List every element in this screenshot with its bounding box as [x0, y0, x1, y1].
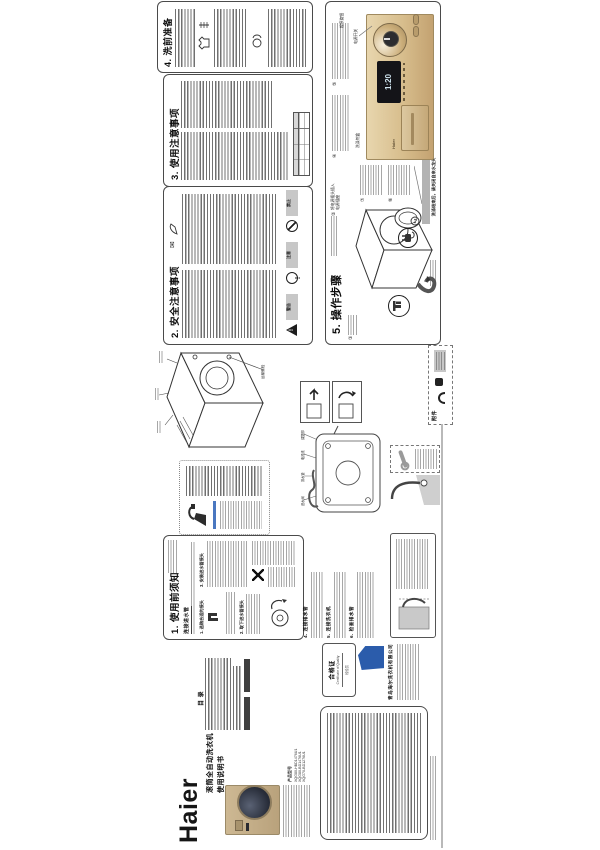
- step7-text: [360, 165, 382, 195]
- warning-triangle-mark: !: [289, 329, 295, 331]
- note-circle-icon: !: [286, 272, 298, 284]
- cover-fine-print: [283, 785, 311, 837]
- step-figure-box-2: [332, 381, 362, 423]
- mail-icon: ✉: [168, 241, 177, 248]
- panel-brand: Haier: [391, 139, 396, 149]
- detergent-drawer: [401, 105, 429, 151]
- tap-spout: [211, 614, 217, 617]
- step4-num: ④: [332, 154, 338, 158]
- section-4-text-1: [175, 9, 195, 67]
- warranty-text: [327, 713, 421, 833]
- faucet-sketch-icon: [186, 501, 210, 529]
- step7-num: ⑦: [360, 198, 366, 202]
- pocket-check-icon: [250, 32, 264, 48]
- adjust-foot-box: [390, 445, 440, 473]
- badge-leader-line: [414, 164, 422, 204]
- section-2-box: 2. 安全注意事项 ✉ ! 警告 ! 注意 禁止: [163, 186, 313, 345]
- rotated-manual-sheet: Haier 滚筒全自动洗衣机 使用说明书 产品型号 XQG80-HBD1476U…: [0, 0, 600, 850]
- install-steps-list: 4. 连接排水管 5. 连接洗衣机 6. 检查排水管: [303, 566, 387, 638]
- tap-figure: [208, 611, 224, 627]
- cover-title-line1: 滚筒全自动洗衣机: [205, 733, 215, 793]
- panel-display: 1:20: [377, 61, 401, 103]
- warranty-box: [320, 706, 428, 840]
- certificate-subtitle: Certificate of Quality: [336, 644, 340, 696]
- inlet-note-box: [179, 460, 270, 535]
- washer-photo: [225, 785, 280, 835]
- parts-label-2: [155, 388, 160, 400]
- socket-icon: [410, 216, 420, 226]
- section-1-step3-text2: [252, 541, 296, 565]
- model-block: 产品型号 XQG80-HBD1476U1 XQG80-BD1476U1 XQG7…: [287, 740, 306, 782]
- hand-icon: [167, 222, 179, 236]
- step4-text: [332, 95, 350, 151]
- plug-callout: [398, 228, 418, 248]
- install-step6-text: [357, 572, 375, 638]
- warning-patch-label: 警告: [286, 294, 292, 320]
- knob-notch: [384, 38, 390, 40]
- warning-patch: 警告: [286, 294, 298, 320]
- toc-header: 目 录: [196, 654, 205, 706]
- section-1-step2: 2. 取下进水管接头: [239, 600, 245, 634]
- install-step6: 6. 检查排水管: [349, 566, 355, 638]
- section-5-title: 5. 操作步骤: [328, 274, 344, 334]
- ban-group: 禁止: [284, 188, 306, 232]
- haier-logo: Haier: [175, 778, 204, 843]
- drawer-handle: [411, 113, 414, 145]
- section-2-text-col1: [182, 270, 278, 338]
- toc-badge-2: [244, 659, 250, 692]
- faucet-callout: [388, 295, 410, 317]
- toc-items-2: [233, 666, 241, 730]
- accessories-label: 附件: [431, 410, 438, 421]
- back-label-cord: 电源线: [300, 450, 305, 460]
- drain-height-text: [396, 539, 430, 589]
- section-5-box: 5. 操作步骤 ① ② 将电源插头插入 电源插座: [325, 1, 441, 345]
- back-label-inlet: 进水阀: [300, 496, 305, 506]
- washer-door: [237, 785, 272, 820]
- zipper-icon: [198, 20, 210, 30]
- manual-scan-page: Haier 滚筒全自动洗衣机 使用说明书 产品型号 XQG80-HBD1476U…: [0, 0, 600, 850]
- note-exclaim: !: [295, 277, 302, 279]
- install-step4: 4. 连接排水管: [303, 566, 309, 638]
- toc-badge-1: [244, 697, 250, 730]
- step8-num: ⑧: [388, 198, 394, 202]
- step1-text: [348, 315, 357, 335]
- warning-group: ! 警告: [284, 292, 306, 336]
- start-button: [413, 26, 419, 37]
- washer-display-strip: [246, 823, 249, 831]
- note-patch: 注意: [286, 242, 298, 268]
- install-step4-text: [311, 572, 323, 638]
- washer-dispenser: [235, 820, 243, 831]
- section-1-step2-text: [246, 594, 260, 634]
- display-time: 1:20: [384, 74, 393, 90]
- section-4-title: 4. 洗前准备: [161, 17, 174, 67]
- section-3-text-col1: [181, 132, 289, 180]
- step8-text: [388, 165, 410, 195]
- section-3-box: 3. 使用注意事项: [163, 74, 313, 187]
- accessory-cap-icon: [435, 378, 443, 386]
- section-4-box: 4. 洗前准备: [157, 1, 313, 73]
- power-button: [413, 14, 419, 25]
- blue-caption: [213, 501, 216, 529]
- company-name: 青岛海尔洗衣机有限公司: [388, 640, 394, 700]
- section-5-intro: [331, 216, 339, 256]
- program-knob: [373, 23, 407, 57]
- blue-logo: [358, 646, 384, 670]
- hose-label: [430, 260, 436, 286]
- certificate-card: 合格证 Certificate of Quality 检验员: [322, 643, 356, 697]
- warranty-bullet-lines: [430, 756, 437, 840]
- certificate-title: 合格证: [327, 644, 336, 696]
- section-1-subintro: [191, 542, 196, 634]
- cover-title-line2: 使用说明书: [216, 733, 226, 793]
- x-mark: [252, 569, 264, 581]
- install-step5-text: [334, 572, 346, 638]
- section-3-title: 3. 使用注意事项: [167, 108, 181, 180]
- inlet-note-list: [186, 466, 262, 496]
- close-tap-badge-text: 洗涤结束后，请关闭自来水龙头: [431, 158, 436, 217]
- back-label-drain: 排水管: [300, 472, 305, 482]
- parts-diagram: 运输螺栓: [157, 347, 269, 455]
- section-1-step3-text: [207, 541, 247, 587]
- note-group: ! 注意: [284, 240, 306, 284]
- section-2-title: 2. 安全注意事项: [167, 266, 181, 338]
- plug-note-line2: 电源插座: [336, 195, 341, 210]
- plug-note-num: ②: [331, 212, 337, 216]
- company-address: [397, 644, 419, 700]
- certificate-stamp: 检验员: [344, 644, 349, 696]
- cover-title: 滚筒全自动洗衣机 使用说明书: [205, 733, 226, 793]
- page-fold-line: [441, 424, 443, 848]
- ban-patch: 禁止: [286, 190, 298, 216]
- adjust-foot-text: [415, 449, 437, 469]
- power-label-line: [359, 24, 373, 38]
- control-panel-photo: Haier 1:20: [366, 14, 434, 160]
- dosage-table-grid: [294, 113, 309, 175]
- floor-drain-figure: [390, 447, 442, 505]
- section-1-intro: [168, 540, 177, 573]
- step-figure-box-1: [300, 381, 330, 423]
- section-4-text-2: [214, 9, 248, 67]
- tap-body: [208, 618, 218, 621]
- accessory-note-patch: [434, 350, 446, 372]
- model-3: XQG70-BD1276U1: [302, 740, 306, 782]
- step1-num: ①: [348, 336, 354, 340]
- toc-items: [205, 658, 231, 730]
- step5-num: ⑤: [332, 82, 338, 86]
- note-patch-label: 注意: [286, 242, 292, 268]
- section-1-step1: 1. 选购合适的接头: [199, 600, 205, 634]
- section-2-text-col2: [182, 194, 278, 264]
- knob-label: 程序旋钮: [340, 13, 345, 28]
- back-label-foot: 调整脚: [300, 430, 305, 440]
- accessories-box: 附件: [428, 345, 453, 425]
- cover-panel: Haier 滚筒全自动洗衣机 使用说明书 产品型号 XQG80-HBD1476U…: [175, 739, 317, 845]
- display-icon-row: [403, 63, 405, 101]
- back-view-diagram: 进水阀 排水管 电源线 调整脚: [300, 424, 388, 520]
- section-1-title: 1. 使用前须知: [167, 572, 181, 634]
- hose-figure: [264, 595, 296, 631]
- company-block: 青岛海尔洗衣机有限公司: [388, 640, 422, 700]
- step5-text: [332, 23, 350, 79]
- section-1-step1-text: [226, 592, 236, 634]
- section-3-text-col2: [181, 81, 273, 128]
- drain-height-box: [390, 533, 436, 638]
- model-label: 产品型号: [287, 740, 293, 782]
- inlet-note-text-left: [220, 501, 262, 529]
- section-1-step3: 3. 安装进水管接头: [199, 553, 205, 587]
- toc-panel: 目 录: [196, 654, 254, 732]
- drawer-label: 洗涤剂盒: [356, 133, 361, 148]
- section-1-box: 1. 使用前须知 连接进水管 1. 选购合适的接头 2. 取下进水管接头 3. …: [163, 535, 304, 640]
- parts-label-3: [159, 351, 164, 363]
- close-tap-badge: 洗涤结束后，请关闭自来水龙头: [422, 150, 430, 224]
- shirt-icon: [198, 36, 210, 50]
- section-4-text-3: [268, 9, 306, 67]
- dosage-table: [293, 112, 310, 176]
- install-step5: 5. 连接洗衣机: [326, 566, 332, 638]
- transport-bolt-label: 运输螺栓: [261, 365, 266, 379]
- section-1-step3-text3: [268, 567, 296, 587]
- prohibition-icon: [286, 220, 298, 232]
- ban-patch-label: 禁止: [286, 190, 292, 216]
- parts-label-1: [157, 421, 162, 433]
- accessory-hose-icon: [432, 390, 448, 406]
- accessory-note-lines: [436, 352, 445, 370]
- certificate-rule: [342, 653, 343, 687]
